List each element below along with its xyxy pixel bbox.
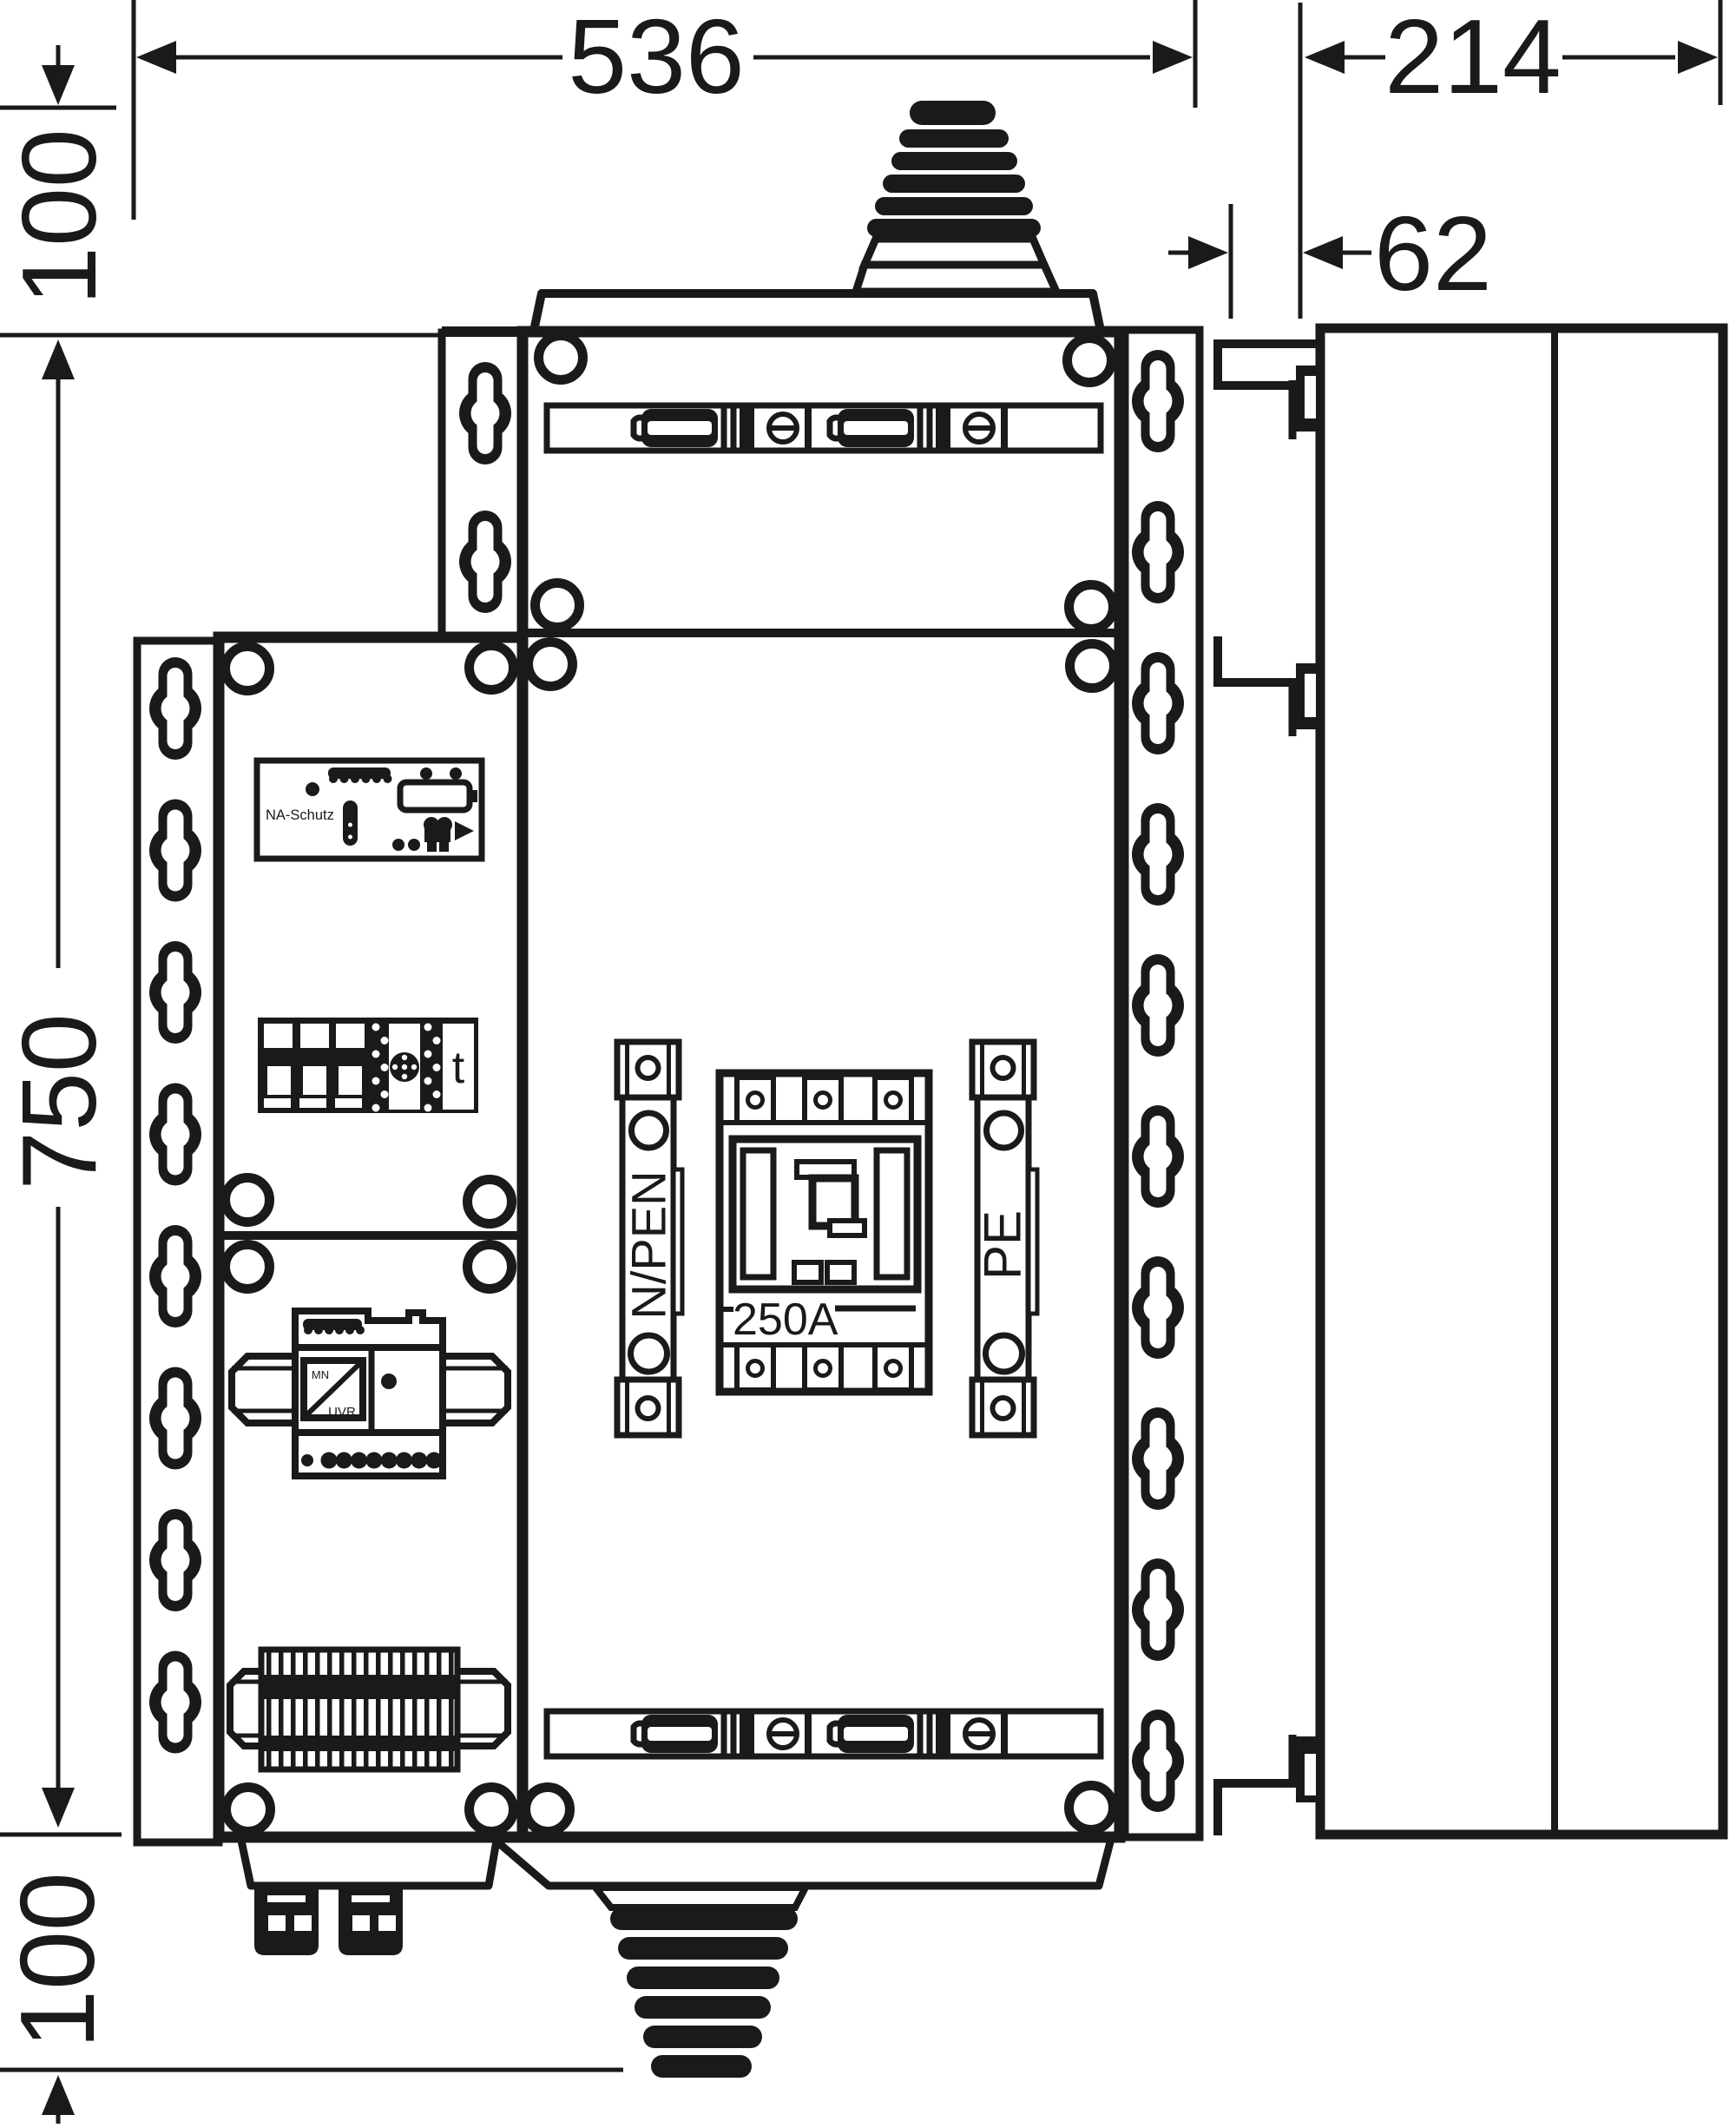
svg-text:NA-Schutz: NA-Schutz — [266, 807, 334, 823]
svg-text:62: 62 — [1374, 194, 1492, 313]
svg-text:UVR: UVR — [328, 1405, 356, 1420]
svg-text:750: 750 — [0, 1013, 118, 1190]
svg-text:N/PEN: N/PEN — [621, 1170, 676, 1319]
svg-text:536: 536 — [568, 0, 745, 115]
svg-text:100: 100 — [0, 1872, 116, 2049]
svg-text:100: 100 — [0, 128, 118, 306]
svg-text:t: t — [452, 1043, 465, 1093]
svg-text:214: 214 — [1384, 0, 1562, 115]
svg-text:PE: PE — [974, 1210, 1032, 1280]
svg-text:MN: MN — [312, 1368, 329, 1381]
svg-text:250A: 250A — [733, 1295, 838, 1345]
